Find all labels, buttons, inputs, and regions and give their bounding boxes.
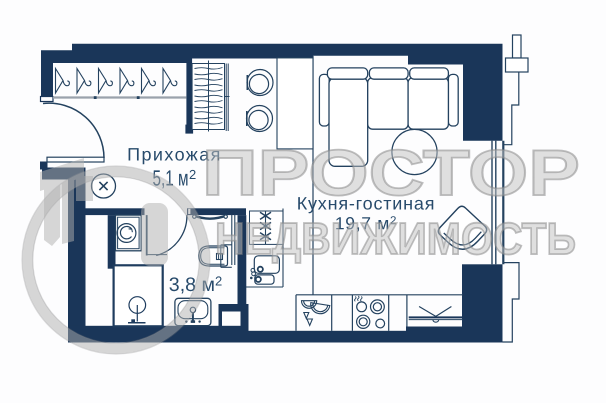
svg-text:ПРОСТОР: ПРОСТОР [202,136,580,209]
svg-text:НЕДВИЖИМОСТЬ: НЕДВИЖИМОСТЬ [215,213,576,264]
svg-text:2: 2 [189,167,196,182]
